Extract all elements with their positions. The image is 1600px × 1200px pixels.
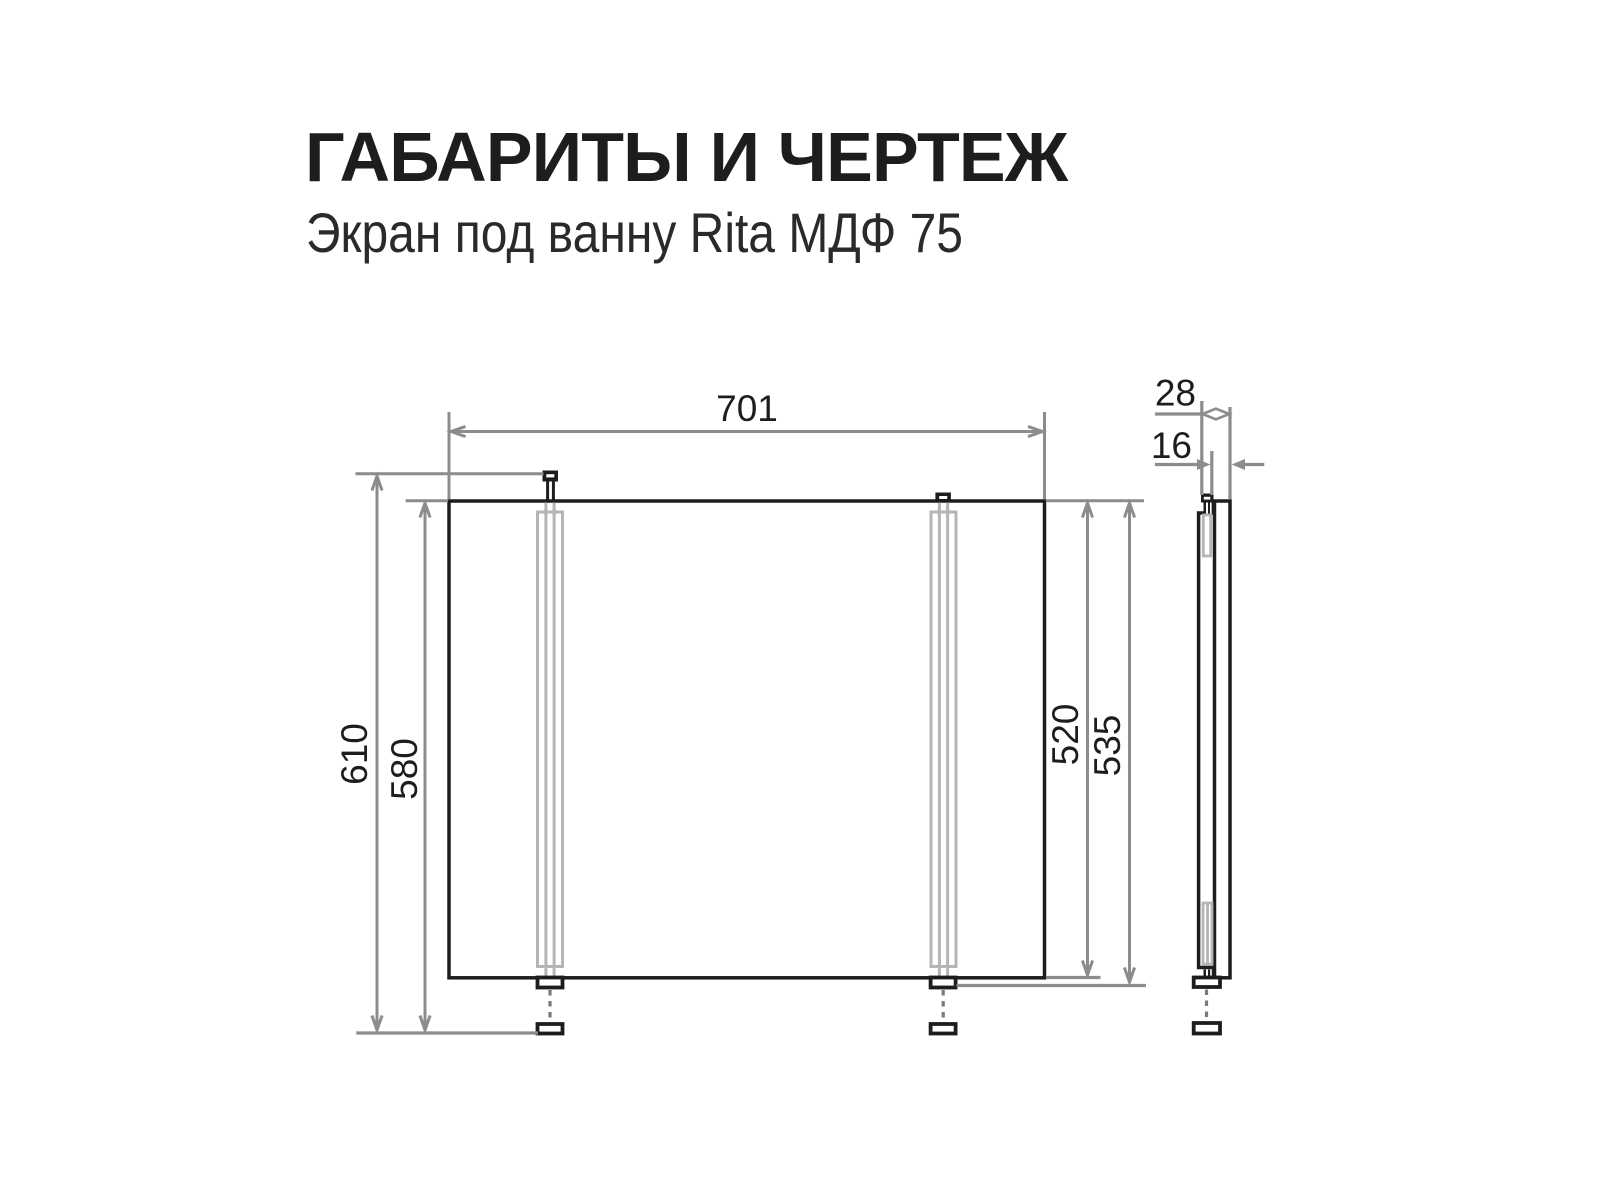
- svg-text:701: 701: [716, 388, 778, 429]
- svg-text:610: 610: [334, 723, 375, 785]
- svg-text:520: 520: [1045, 704, 1086, 766]
- svg-text:16: 16: [1151, 425, 1192, 466]
- svg-text:580: 580: [384, 738, 425, 800]
- svg-text:28: 28: [1155, 373, 1196, 414]
- svg-text:535: 535: [1087, 715, 1128, 777]
